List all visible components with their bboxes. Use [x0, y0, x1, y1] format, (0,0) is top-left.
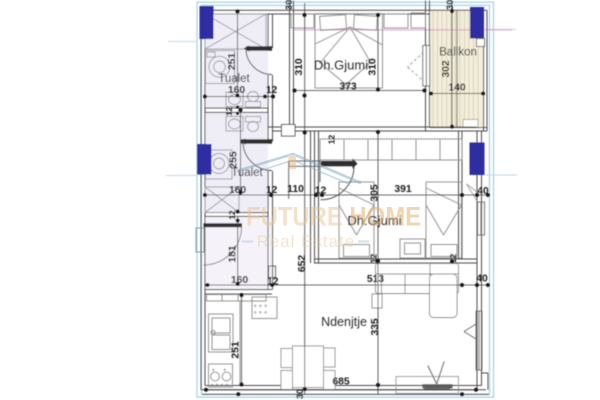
svg-text:160: 160	[229, 185, 247, 196]
svg-text:335: 335	[370, 318, 381, 336]
svg-text:310: 310	[294, 58, 305, 76]
svg-text:12: 12	[224, 107, 234, 117]
svg-text:40: 40	[477, 186, 489, 197]
svg-text:30: 30	[284, 0, 294, 10]
svg-text:12: 12	[327, 135, 337, 145]
svg-text:513: 513	[367, 274, 385, 285]
svg-text:391: 391	[394, 184, 412, 195]
svg-text:Ndenjtje: Ndenjtje	[321, 315, 367, 329]
svg-text:+ + +: + + +	[254, 311, 268, 317]
svg-text:12: 12	[448, 254, 458, 264]
svg-text:110: 110	[287, 184, 304, 195]
svg-text:12: 12	[266, 185, 278, 196]
svg-text:373: 373	[339, 82, 357, 93]
svg-text:12: 12	[266, 85, 278, 96]
svg-text:251: 251	[227, 53, 238, 71]
svg-text:140: 140	[448, 83, 466, 94]
svg-text:+: +	[212, 368, 216, 374]
svg-text:302: 302	[441, 60, 452, 78]
svg-text:+: +	[223, 368, 227, 374]
svg-text:251: 251	[231, 341, 242, 359]
svg-text:685: 685	[332, 377, 350, 388]
svg-text:12: 12	[267, 277, 279, 288]
svg-text:40: 40	[476, 274, 488, 285]
svg-text:160: 160	[231, 275, 249, 286]
svg-text:FUTURE HOME: FUTURE HOME	[246, 202, 421, 232]
svg-text:181: 181	[227, 245, 238, 263]
svg-text:Dh.Gjumi: Dh.Gjumi	[314, 58, 368, 73]
svg-text:305: 305	[370, 184, 381, 202]
svg-text:12: 12	[227, 210, 237, 220]
svg-text:+ + +: + + +	[254, 304, 268, 310]
svg-text:160: 160	[228, 85, 246, 96]
svg-text:12: 12	[315, 186, 327, 197]
svg-text:Ballkon: Ballkon	[439, 47, 477, 59]
svg-text:30: 30	[445, 0, 455, 10]
svg-text:652: 652	[297, 255, 308, 273]
svg-text:12: 12	[369, 254, 379, 264]
svg-text:310: 310	[368, 58, 379, 76]
svg-text:Real Estate: Real Estate	[257, 233, 356, 251]
svg-text:30: 30	[295, 389, 305, 399]
svg-text:Tualet: Tualet	[218, 73, 250, 85]
